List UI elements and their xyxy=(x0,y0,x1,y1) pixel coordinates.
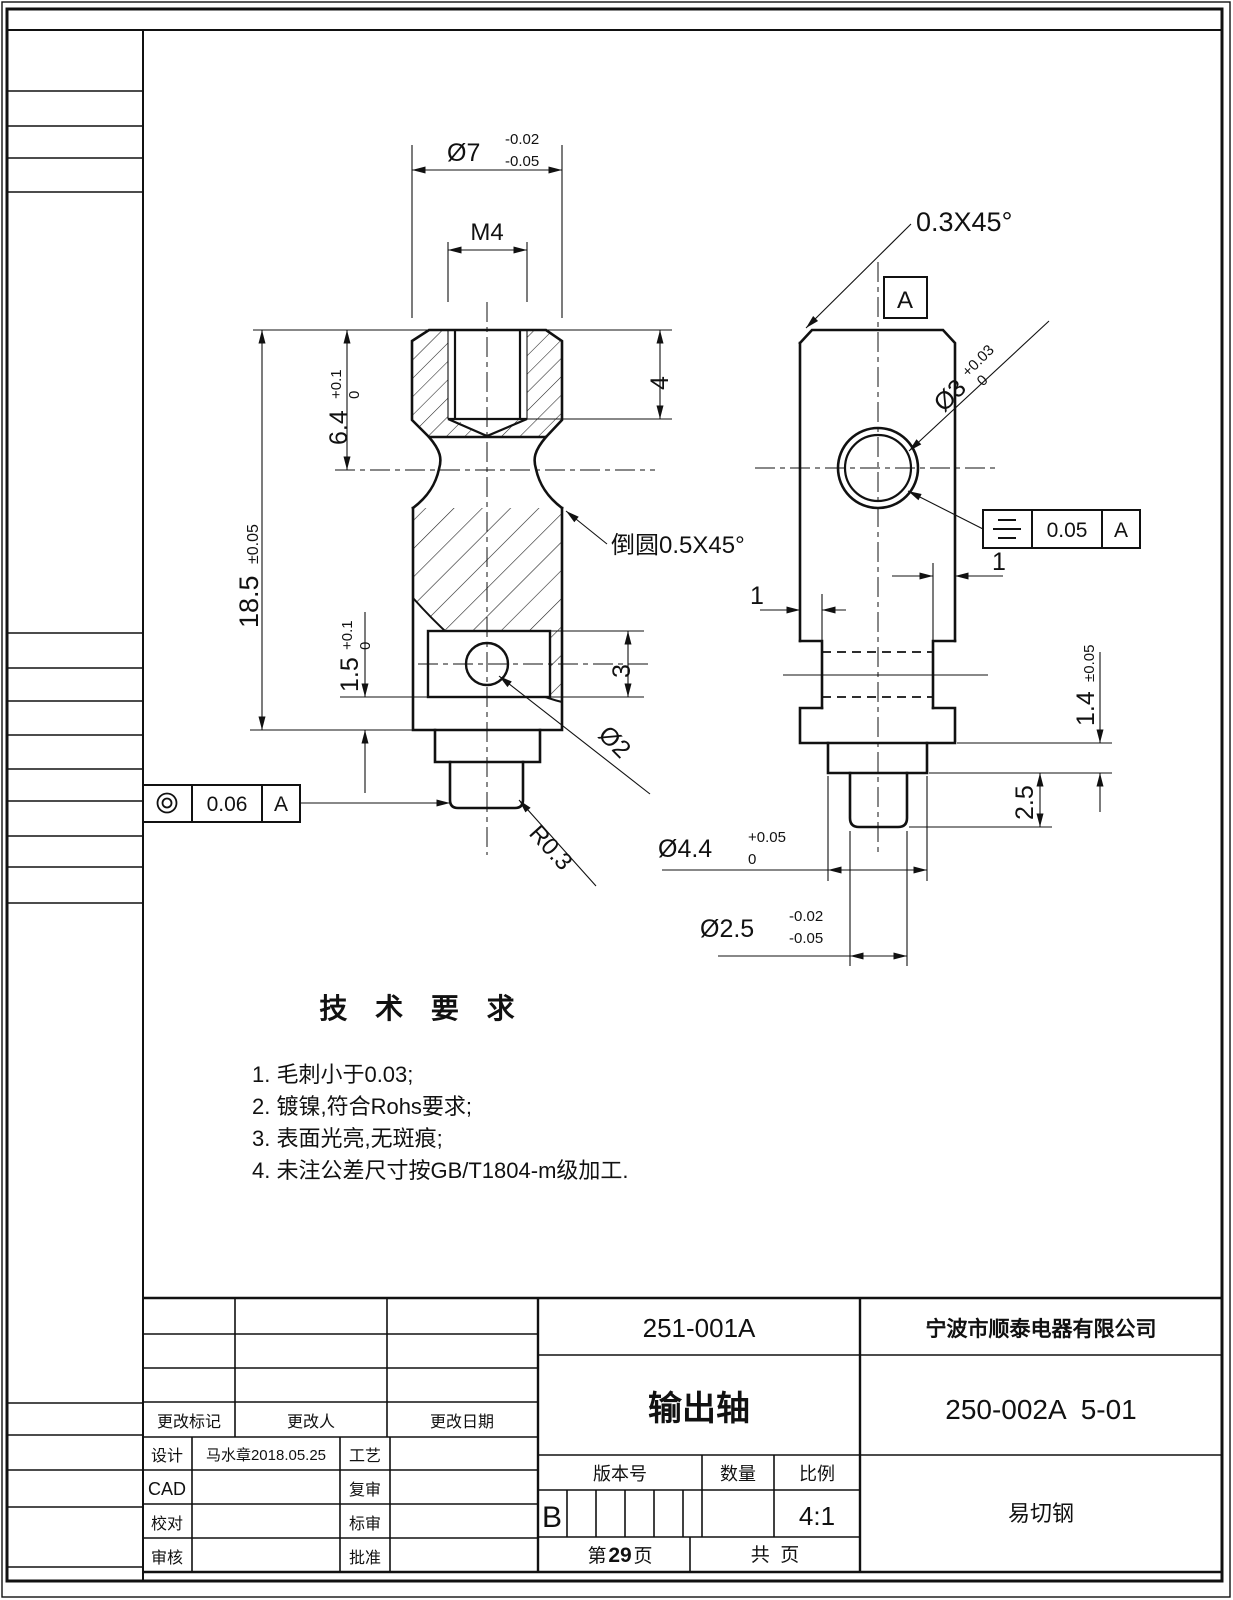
dim-dia7: Ø7 xyxy=(447,139,480,167)
tech-requirement-item: 2. 镀镍,符合Rohs要求; xyxy=(252,1094,472,1119)
dim-dia7-lower: -0.05 xyxy=(505,153,539,170)
std-label: 标审 xyxy=(349,1515,381,1533)
symmetry-frame: 0.05 A xyxy=(908,491,1140,548)
dim-tip-d: Ø2.5 xyxy=(700,915,754,943)
change-mark-label: 更改标记 xyxy=(157,1413,221,1431)
dim-notch-right: 1 xyxy=(992,548,1006,576)
approve-label: 批准 xyxy=(349,1549,381,1567)
dim-hole-d: Ø2 xyxy=(593,720,636,763)
dim-dia7-upper: -0.02 xyxy=(505,131,539,148)
page-prefix: 第 xyxy=(587,1545,606,1567)
dim-step-d-upper: +0.05 xyxy=(748,829,786,846)
dim-step-h-tol: ±0.05 xyxy=(1081,645,1098,682)
concentricity-icon xyxy=(158,794,177,813)
dim-slot-h: 3 xyxy=(608,664,636,678)
doc-number: 251-001A xyxy=(643,1313,756,1343)
company-name: 宁波市顺泰电器有限公司 xyxy=(926,1317,1157,1341)
symmetry-value: 0.05 xyxy=(1047,519,1088,542)
change-date-label: 更改日期 xyxy=(430,1413,494,1431)
tech-requirement-item: 1. 毛刺小于0.03; xyxy=(252,1062,413,1087)
version-label: 版本号 xyxy=(593,1464,647,1484)
qty-label: 数量 xyxy=(720,1464,756,1484)
dim-side-hole-d-lower: 0 xyxy=(974,372,992,390)
dim-tip-d-lower: -0.05 xyxy=(789,930,823,947)
dim-side-hole-d: Ø3 xyxy=(928,374,971,417)
tech-requirement-item: 3. 表面光亮,无斑痕; xyxy=(252,1126,443,1151)
revision-strip xyxy=(7,91,143,1567)
dim-upper-h-upper: +0.1 xyxy=(328,369,345,399)
page-suffix: 页 xyxy=(633,1546,652,1567)
dim-slot-offset-upper: +0.1 xyxy=(339,620,356,650)
dim-thread-depth: 4 xyxy=(646,376,674,390)
front-view xyxy=(335,302,655,855)
scale-label: 比例 xyxy=(799,1464,835,1484)
dim-tip-d-upper: -0.02 xyxy=(789,908,823,925)
change-by-label: 更改人 xyxy=(287,1413,335,1431)
note-fillet: 倒圆0.5X45° xyxy=(611,532,745,559)
drawing-canvas: 0.06 A A 0.05 A xyxy=(0,0,1233,1600)
design-label: 设计 xyxy=(151,1447,183,1465)
dim-tip-h: 2.5 xyxy=(1011,785,1039,820)
dim-upper-h: 6.4 xyxy=(325,410,353,445)
page-number: 29 xyxy=(608,1544,631,1567)
part-name: 输出轴 xyxy=(648,1390,750,1428)
version-value: B xyxy=(542,1501,562,1534)
concentricity-value: 0.06 xyxy=(207,793,248,816)
dim-step-h: 1.4 xyxy=(1072,691,1100,726)
symmetry-datum: A xyxy=(1114,519,1128,542)
datum-a: A xyxy=(884,277,927,318)
tech-requirements-title: 技 术 要 求 xyxy=(319,993,524,1024)
dim-total-h: 18.5 xyxy=(234,575,264,628)
dim-upper-h-lower: 0 xyxy=(346,391,363,399)
recheck-label: 复审 xyxy=(349,1481,381,1499)
side-view-dimensions xyxy=(662,224,1112,966)
dim-step-d: Ø4.4 xyxy=(658,835,712,863)
dim-notch-left: 1 xyxy=(750,582,764,610)
dim-step-d-lower: 0 xyxy=(748,851,756,868)
dim-m4: M4 xyxy=(470,219,503,246)
dim-slot-offset-lower: 0 xyxy=(357,642,374,650)
title-block: 251-001A 宁波市顺泰电器有限公司 输出轴 250-002A 5-01 易… xyxy=(143,1298,1222,1572)
change-table-grid xyxy=(143,1298,538,1572)
check-label: 校对 xyxy=(151,1515,183,1533)
concentricity-datum: A xyxy=(274,793,288,816)
dim-corner-r: R0.3 xyxy=(524,820,578,876)
tech-requirements: 技 术 要 求 1. 毛刺小于0.03; 2. 镀镍,符合Rohs要求; 3. … xyxy=(252,993,629,1183)
concentricity-frame: 0.06 A xyxy=(143,785,450,822)
part-number: 250-002A 5-01 xyxy=(945,1394,1137,1425)
dimension-labels: Ø7 -0.02 -0.05 M4 4 6.4 +0.1 0 18.5 ±0.0… xyxy=(234,131,1100,947)
side-view xyxy=(755,262,1000,852)
cad-label: CAD xyxy=(148,1479,186,1499)
audit-label: 审核 xyxy=(151,1549,183,1567)
scale-value: 4:1 xyxy=(799,1501,835,1531)
total-pages: 共 页 xyxy=(751,1544,800,1566)
drawing-sheet: 0.06 A A 0.05 A xyxy=(0,0,1233,1600)
tech-requirement-item: 4. 未注公差尺寸按GB/T1804-m级加工. xyxy=(252,1158,629,1183)
note-chamfer: 0.3X45° xyxy=(916,207,1012,237)
process-label: 工艺 xyxy=(349,1447,381,1465)
material: 易切钢 xyxy=(1008,1501,1074,1526)
symmetry-icon xyxy=(993,520,1021,538)
design-value: 马水章2018.05.25 xyxy=(206,1446,326,1464)
datum-a-label: A xyxy=(897,287,913,314)
page-border xyxy=(2,2,1230,1597)
dim-total-h-tol: ±0.05 xyxy=(245,524,262,564)
dim-slot-offset: 1.5 xyxy=(336,657,364,692)
